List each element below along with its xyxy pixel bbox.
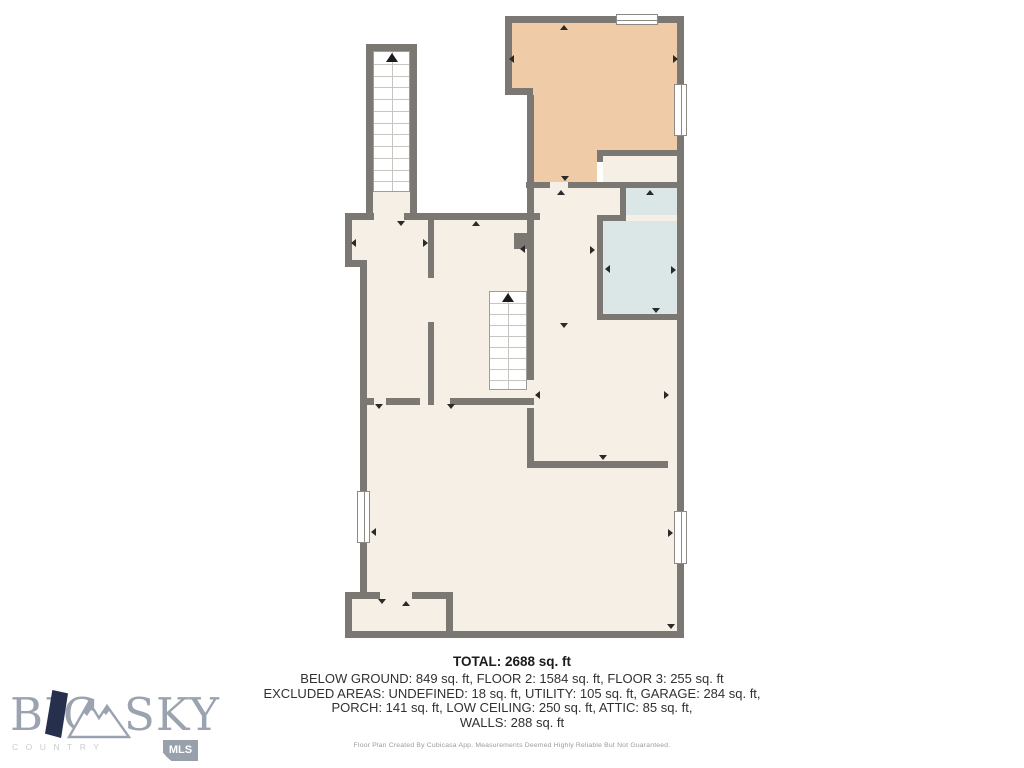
wall [533,461,668,468]
door-marker-icon [667,624,675,629]
door-marker-icon [605,265,610,273]
window-icon [674,84,687,136]
room-floor [603,221,677,314]
door-marker-icon [560,25,568,30]
summary-total: TOTAL: 2688 sq. ft [0,654,1024,669]
door-marker-icon [375,404,383,409]
door-marker-icon [646,190,654,195]
window-icon [616,14,658,25]
wall [597,150,603,162]
wall [597,221,603,320]
door-marker-icon [590,246,595,254]
door-marker-icon [423,239,428,247]
door-marker-icon [668,529,673,537]
wall [428,219,434,278]
stairs-icon [489,291,527,390]
wall [428,322,434,405]
door-marker-icon [397,221,405,226]
window-icon [674,511,687,564]
door-marker-icon [351,239,356,247]
door-marker-icon [378,599,386,604]
door-marker-icon [509,55,514,63]
wall [345,631,684,638]
stairs-icon [373,51,410,192]
door-marker-icon [671,266,676,274]
door-marker-icon [535,391,540,399]
window-mullion [681,85,682,135]
room-floor [512,23,677,88]
door-marker-icon [402,601,410,606]
floorplan-drawing: Bedroom 12'5" x 12'4" Hall '11" x 10'10"… [0,0,1024,768]
door-marker-icon [472,221,480,226]
logo-subtitle-country: COUNTRY [12,742,106,752]
floorplan-page: Bedroom 12'5" x 12'4" Hall '11" x 10'10"… [0,0,1024,768]
wall [505,88,533,95]
door-marker-icon [371,528,376,536]
stair-centerline [508,292,509,389]
wall [597,150,677,156]
logo-word-sky: SKY [124,692,220,738]
wall [526,182,550,188]
window-mullion [617,20,657,21]
door-marker-icon [560,323,568,328]
room-floor [603,156,677,182]
door-marker-icon [652,308,660,313]
stair-centerline [392,52,393,191]
wall [527,408,534,468]
door-marker-icon [561,176,569,181]
door-marker-icon [673,55,678,63]
wall [410,44,417,220]
window-mullion [681,512,682,563]
stairs-up-arrow-icon [502,293,514,302]
wall [366,44,373,220]
door-marker-icon [447,404,455,409]
door-marker-icon [520,245,525,253]
wall [386,398,420,405]
mls-badge: MLS [163,740,198,761]
wall [450,398,534,405]
summary-line-floors: BELOW GROUND: 849 sq. ft, FLOOR 2: 1584 … [0,672,1024,687]
window-mullion [364,492,365,542]
stairs-up-arrow-icon [386,53,398,62]
wall [360,260,367,405]
window-icon [357,491,370,543]
big-sky-country-mls-logo: BIG SKY COUNTRY MLS [8,690,208,764]
door-marker-icon [599,455,607,460]
room-floor [352,599,446,631]
mountain-icon [67,696,131,739]
room-floor [533,88,677,150]
door-marker-icon [557,190,565,195]
wall [404,213,540,220]
door-marker-icon [664,391,669,399]
room-floor [373,192,410,213]
wall [597,314,677,320]
